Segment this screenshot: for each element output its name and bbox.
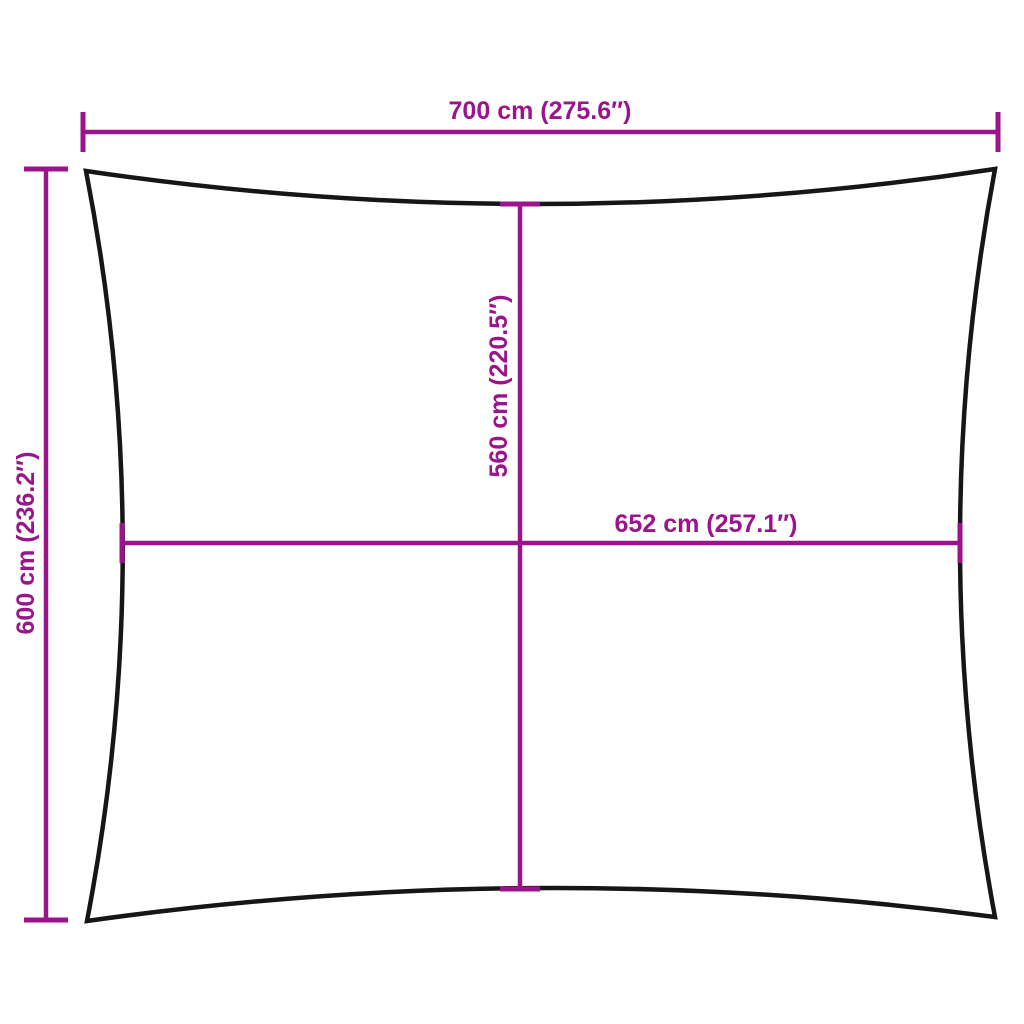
top-width-label: 700 cm (275.6″) <box>449 97 632 125</box>
product-dimension-image: 700 cm (275.6″) 600 cm (236.2″) 560 cm (… <box>0 0 1024 1024</box>
side-height-dimension: 600 cm (236.2″) <box>12 169 68 920</box>
center-height-label: 560 cm (220.5″) <box>485 295 513 478</box>
center-width-label: 652 cm (257.1″) <box>615 510 798 538</box>
side-height-label: 600 cm (236.2″) <box>12 452 40 635</box>
dimension-diagram: 700 cm (275.6″) 600 cm (236.2″) 560 cm (… <box>0 0 1024 1024</box>
top-width-dimension: 700 cm (275.6″) <box>83 97 998 152</box>
